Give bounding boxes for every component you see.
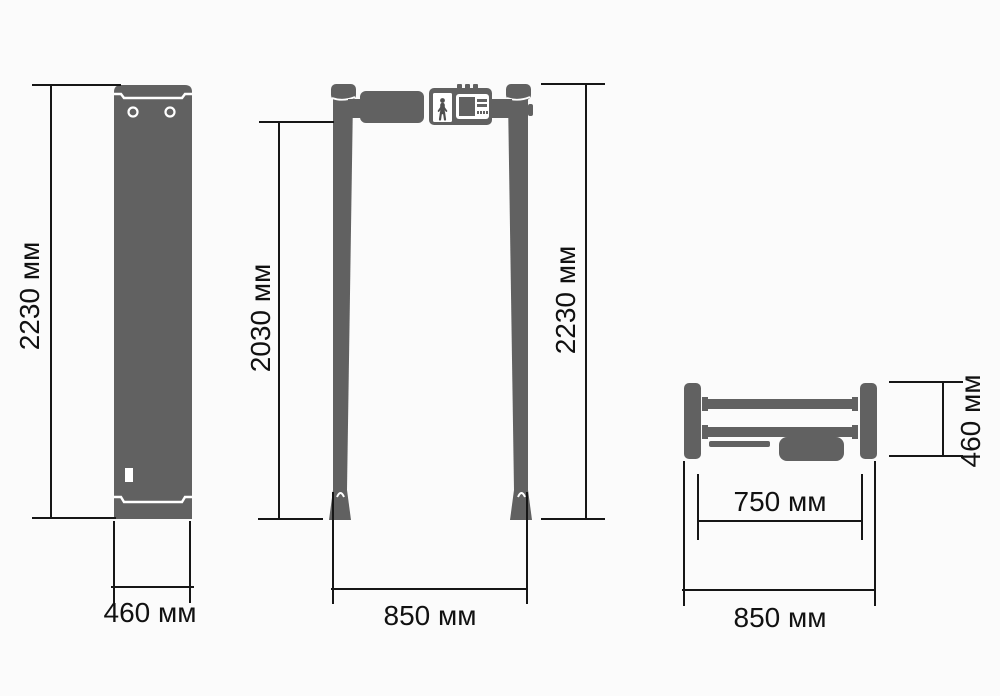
side-width-ext-line [113,521,115,603]
side-height-dimension-label: 2230 мм [16,242,44,351]
left-post [329,84,356,520]
side-height-dim-line [50,84,52,519]
top-width-dimension-label: 850 мм [734,604,827,632]
side-width-dim-line [111,586,194,588]
hinge-nub [528,104,533,116]
front-height-dim-line [585,83,587,519]
display-screen [459,97,475,116]
control-unit [429,84,492,125]
side-width-ext-line [189,521,191,603]
top-view-control-box [779,437,844,461]
top-depth-bottom-tick [889,455,963,457]
front-height-dimension-label: 2230 мм [552,246,580,355]
top-depth-dim-line [942,381,944,457]
side-height-top-tick [32,84,121,86]
top-width-ext-line [874,461,876,606]
front-inner-height-dim-line [278,121,280,519]
front-width-dim-line [331,588,528,590]
top-width-ext-line [683,461,685,606]
top-depth-dimension-label: 460 мм [957,375,985,468]
front-inner-height-top-tick [259,121,334,123]
side-view-drawing [108,80,200,530]
front-inner-height-bottom-tick [258,518,323,520]
connector-slot [125,468,133,482]
right-post [506,84,533,520]
front-width-dimension-label: 850 мм [384,602,477,630]
top-width-dim-line [682,589,876,591]
top-inner-width-ext-line [861,474,863,540]
right-post-top [860,383,877,459]
crossbar-left-block [360,91,424,123]
side-width-dimension-label: 460 мм [104,599,197,627]
detector-side-panel [114,85,192,519]
front-view-drawing [325,78,540,528]
top-inner-width-dimension-label: 750 мм [734,488,827,516]
top-inner-width-dim-line [697,520,863,522]
top-depth-top-tick [889,381,963,383]
front-inner-height-dimension-label: 2030 мм [247,264,275,373]
right-post-foot [510,490,532,520]
top-view-crossbars [702,397,858,439]
front-height-bottom-tick [541,518,605,520]
side-height-bottom-tick [32,517,116,519]
top-view-drawing [678,376,882,468]
led-bar [477,99,487,102]
top-inner-width-ext-line [697,474,699,540]
top-view-rail [709,441,770,447]
front-height-top-tick [541,83,605,85]
led-bar [477,104,487,107]
left-post-top [684,383,701,459]
dimension-diagram-canvas: 2230 мм 460 мм [0,0,1000,696]
